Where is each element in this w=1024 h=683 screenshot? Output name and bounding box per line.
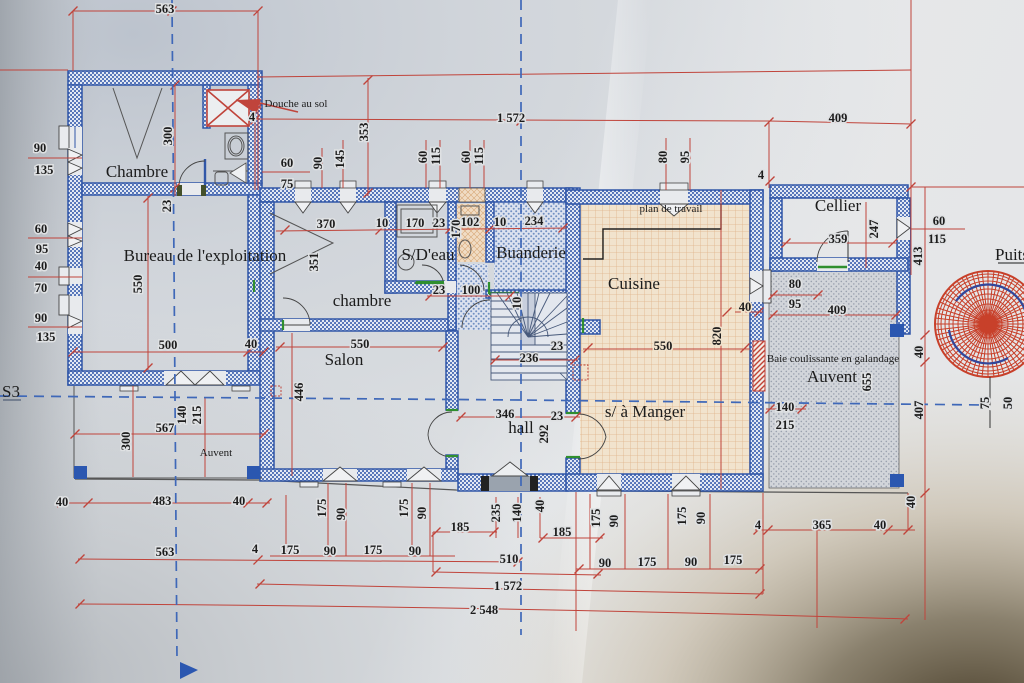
svg-text:90: 90 xyxy=(685,555,698,569)
svg-text:chambre: chambre xyxy=(333,291,392,310)
svg-text:90: 90 xyxy=(409,544,422,558)
svg-text:40: 40 xyxy=(35,259,48,273)
svg-text:550: 550 xyxy=(131,275,145,294)
svg-text:140: 140 xyxy=(510,504,524,523)
svg-text:102: 102 xyxy=(461,215,480,229)
svg-text:23: 23 xyxy=(551,409,564,423)
svg-text:115: 115 xyxy=(472,147,486,165)
svg-text:60: 60 xyxy=(416,151,430,164)
svg-text:370: 370 xyxy=(317,217,336,231)
svg-text:563: 563 xyxy=(156,2,175,16)
svg-text:563: 563 xyxy=(156,545,175,559)
svg-text:Cellier: Cellier xyxy=(815,196,862,215)
svg-text:1 572: 1 572 xyxy=(497,111,525,125)
svg-text:50: 50 xyxy=(1001,397,1015,410)
svg-text:236: 236 xyxy=(520,351,539,365)
svg-text:175: 175 xyxy=(397,499,411,518)
svg-text:567: 567 xyxy=(156,421,175,435)
svg-text:S/D'eau: S/D'eau xyxy=(401,245,455,264)
svg-text:90: 90 xyxy=(415,507,429,520)
svg-text:40: 40 xyxy=(533,500,547,513)
svg-text:170: 170 xyxy=(406,216,425,230)
svg-text:215: 215 xyxy=(776,418,795,432)
svg-text:75: 75 xyxy=(281,177,294,191)
svg-text:Bureau de l'exploitation: Bureau de l'exploitation xyxy=(124,246,287,265)
svg-text:Auvent: Auvent xyxy=(807,367,857,386)
svg-text:23: 23 xyxy=(433,216,446,230)
svg-text:234: 234 xyxy=(525,214,545,228)
svg-text:s/ à Manger: s/ à Manger xyxy=(605,402,686,421)
svg-text:550: 550 xyxy=(654,339,673,353)
svg-text:550: 550 xyxy=(351,337,370,351)
svg-text:413: 413 xyxy=(911,247,925,266)
svg-text:40: 40 xyxy=(912,346,926,359)
svg-text:95: 95 xyxy=(36,242,49,256)
svg-text:145: 145 xyxy=(333,150,347,169)
svg-text:115: 115 xyxy=(928,232,946,246)
svg-text:Cuisine: Cuisine xyxy=(608,274,660,293)
svg-text:23: 23 xyxy=(551,339,564,353)
svg-text:215: 215 xyxy=(190,406,204,425)
svg-text:Buanderie: Buanderie xyxy=(496,243,566,262)
svg-text:Douche au sol: Douche au sol xyxy=(265,98,328,110)
svg-text:90: 90 xyxy=(599,556,612,570)
svg-text:2 548: 2 548 xyxy=(470,603,498,617)
svg-text:409: 409 xyxy=(829,111,848,125)
svg-text:365: 365 xyxy=(813,518,832,532)
svg-text:300: 300 xyxy=(161,127,175,146)
svg-text:90: 90 xyxy=(35,311,48,325)
svg-text:75: 75 xyxy=(978,397,992,410)
svg-text:140: 140 xyxy=(776,400,795,414)
svg-text:S3: S3 xyxy=(2,382,20,401)
svg-text:409: 409 xyxy=(828,303,847,317)
svg-text:40: 40 xyxy=(56,495,69,509)
svg-text:90: 90 xyxy=(34,141,47,155)
svg-text:40: 40 xyxy=(233,494,246,508)
svg-text:70: 70 xyxy=(35,281,48,295)
svg-text:292: 292 xyxy=(537,425,551,444)
svg-text:80: 80 xyxy=(656,151,670,164)
svg-text:346: 346 xyxy=(496,407,515,421)
svg-text:1 572: 1 572 xyxy=(494,579,522,593)
svg-text:95: 95 xyxy=(789,297,802,311)
svg-text:351: 351 xyxy=(307,253,321,272)
svg-text:40: 40 xyxy=(245,337,258,351)
svg-text:60: 60 xyxy=(933,214,946,228)
svg-text:115: 115 xyxy=(429,147,443,165)
svg-text:40: 40 xyxy=(904,496,918,509)
svg-text:40: 40 xyxy=(739,300,752,314)
svg-text:10: 10 xyxy=(376,216,389,230)
svg-text:820: 820 xyxy=(710,327,724,346)
svg-text:40: 40 xyxy=(874,518,887,532)
svg-text:4: 4 xyxy=(755,518,762,532)
svg-text:235: 235 xyxy=(489,504,503,523)
svg-text:90: 90 xyxy=(694,512,708,525)
svg-text:185: 185 xyxy=(451,520,470,534)
svg-text:Baie coulissante en galandage: Baie coulissante en galandage xyxy=(767,353,899,365)
svg-text:175: 175 xyxy=(675,507,689,526)
svg-text:170: 170 xyxy=(449,220,463,239)
svg-text:185: 185 xyxy=(553,525,572,539)
svg-text:10: 10 xyxy=(494,215,507,229)
svg-text:Chambre: Chambre xyxy=(106,162,168,181)
svg-text:135: 135 xyxy=(35,163,54,177)
svg-text:80: 80 xyxy=(789,277,802,291)
svg-text:510: 510 xyxy=(500,552,519,566)
svg-text:4: 4 xyxy=(252,542,259,556)
svg-text:175: 175 xyxy=(589,509,603,528)
svg-text:90: 90 xyxy=(311,157,325,170)
svg-text:plan de travail: plan de travail xyxy=(640,203,703,215)
svg-text:Auvent: Auvent xyxy=(200,447,232,459)
svg-text:90: 90 xyxy=(334,508,348,521)
svg-text:175: 175 xyxy=(364,543,383,557)
svg-text:60: 60 xyxy=(459,151,473,164)
svg-text:Salon: Salon xyxy=(325,350,364,369)
svg-text:483: 483 xyxy=(153,494,172,508)
svg-text:407: 407 xyxy=(912,401,926,420)
svg-text:655: 655 xyxy=(860,373,874,392)
svg-text:500: 500 xyxy=(159,338,178,352)
svg-text:135: 135 xyxy=(37,330,56,344)
svg-text:60: 60 xyxy=(281,156,294,170)
svg-text:23: 23 xyxy=(160,200,174,213)
svg-text:4: 4 xyxy=(249,110,256,124)
svg-text:60: 60 xyxy=(35,222,48,236)
svg-text:Puits: Puits xyxy=(995,245,1024,264)
svg-text:10: 10 xyxy=(510,297,524,310)
svg-text:353: 353 xyxy=(357,123,371,142)
svg-text:95: 95 xyxy=(678,151,692,164)
svg-text:175: 175 xyxy=(638,555,657,569)
svg-text:90: 90 xyxy=(324,544,337,558)
svg-text:4: 4 xyxy=(758,168,765,182)
svg-text:100: 100 xyxy=(462,283,481,297)
svg-text:23: 23 xyxy=(433,283,446,297)
svg-text:175: 175 xyxy=(315,499,329,518)
svg-text:300: 300 xyxy=(119,432,133,451)
svg-text:90: 90 xyxy=(607,515,621,528)
svg-text:175: 175 xyxy=(724,553,743,567)
svg-text:175: 175 xyxy=(281,543,300,557)
svg-text:446: 446 xyxy=(292,383,306,402)
svg-text:359: 359 xyxy=(829,232,848,246)
svg-text:140: 140 xyxy=(175,406,189,425)
svg-text:247: 247 xyxy=(867,220,881,239)
